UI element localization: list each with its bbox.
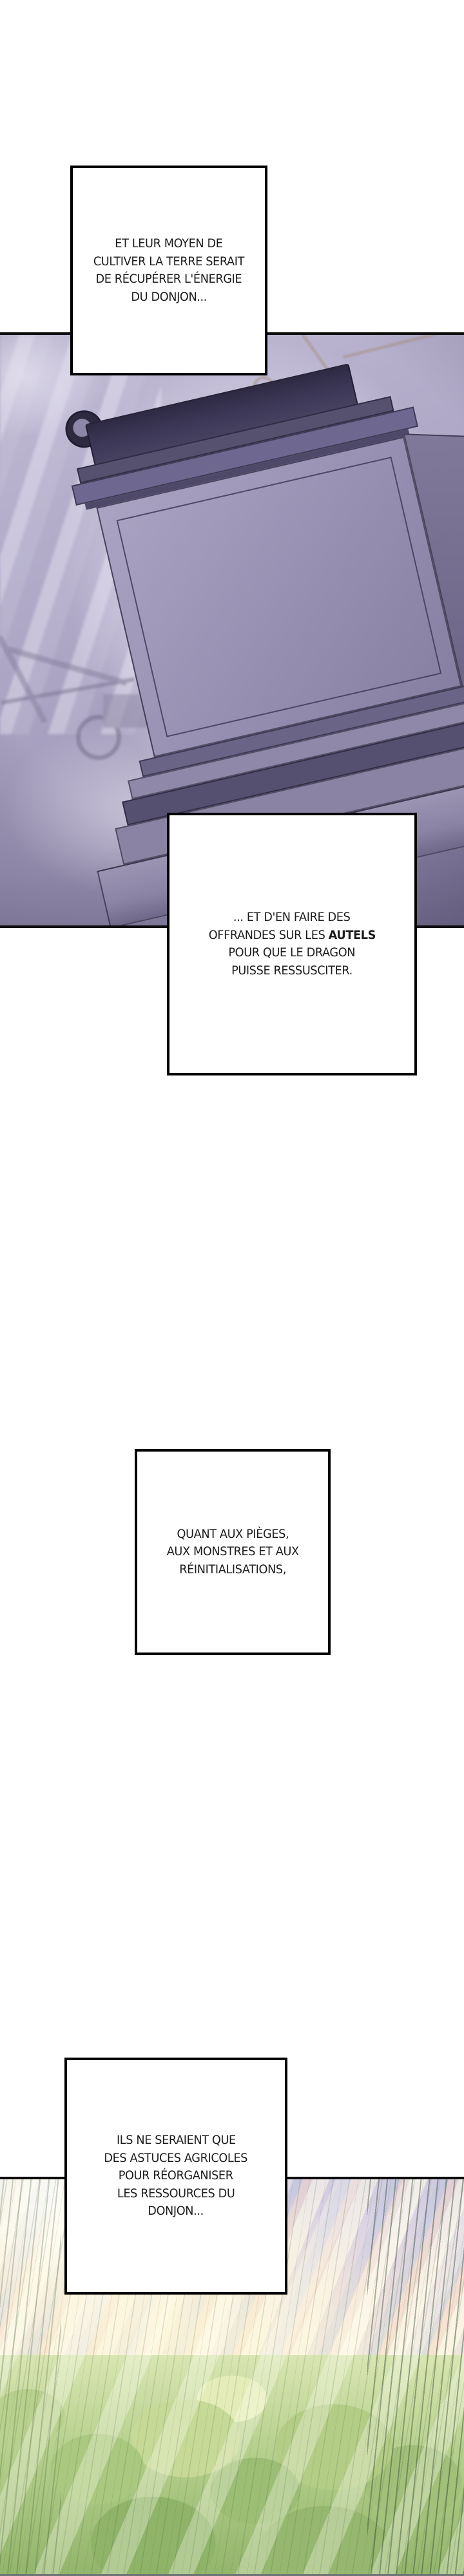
caption-line: ... ET D'EN FAIRE DES xyxy=(233,909,351,927)
caption-line: RÉINITIALISATIONS, xyxy=(179,1561,286,1579)
caption-line: OFFRANDES SUR LES AUTELS xyxy=(208,927,375,945)
speed-streaks-left xyxy=(0,2179,61,2574)
caption-line: DU DONJON... xyxy=(131,289,207,307)
caption-line: POUR QUE LE DRAGON xyxy=(229,944,356,962)
caption-line: DONJON... xyxy=(148,2202,204,2221)
caption-line: CULTIVER LA TERRE SERAIT xyxy=(93,253,244,271)
speech-box-4: ILS NE SERAIENT QUEDES ASTUCES AGRICOLES… xyxy=(64,2058,287,2295)
caption-line: LES RESSOURCES DU xyxy=(117,2185,235,2203)
caption-line: ILS NE SERAIENT QUE xyxy=(117,2132,236,2150)
caption-line: QUANT AUX PIÈGES, xyxy=(177,1526,289,1544)
catapult-beam xyxy=(0,636,48,724)
caption-line: DES ASTUCES AGRICOLES xyxy=(104,2150,248,2168)
caption-line: ET LEUR MOYEN DE xyxy=(115,235,222,253)
speech-box-1: ET LEUR MOYEN DECULTIVER LA TERRE SERAIT… xyxy=(70,166,267,375)
comic-page: ET LEUR MOYEN DECULTIVER LA TERRE SERAIT… xyxy=(0,0,464,2576)
speech-box-2: ... ET D'EN FAIRE DESOFFRANDES SUR LES A… xyxy=(167,813,417,1075)
caption-line: POUR RÉORGANISER xyxy=(119,2167,233,2185)
caption-line: AUX MONSTRES ET AUX xyxy=(166,1543,298,1561)
speech-box-3: QUANT AUX PIÈGES,AUX MONSTRES ET AUXRÉIN… xyxy=(135,1449,331,1655)
caption-line: DE RÉCUPÉRER L'ÉNERGIE xyxy=(96,270,242,289)
speed-streaks-right xyxy=(367,2179,464,2574)
caption-line: PUISSE RESSUSCITER. xyxy=(231,962,353,980)
